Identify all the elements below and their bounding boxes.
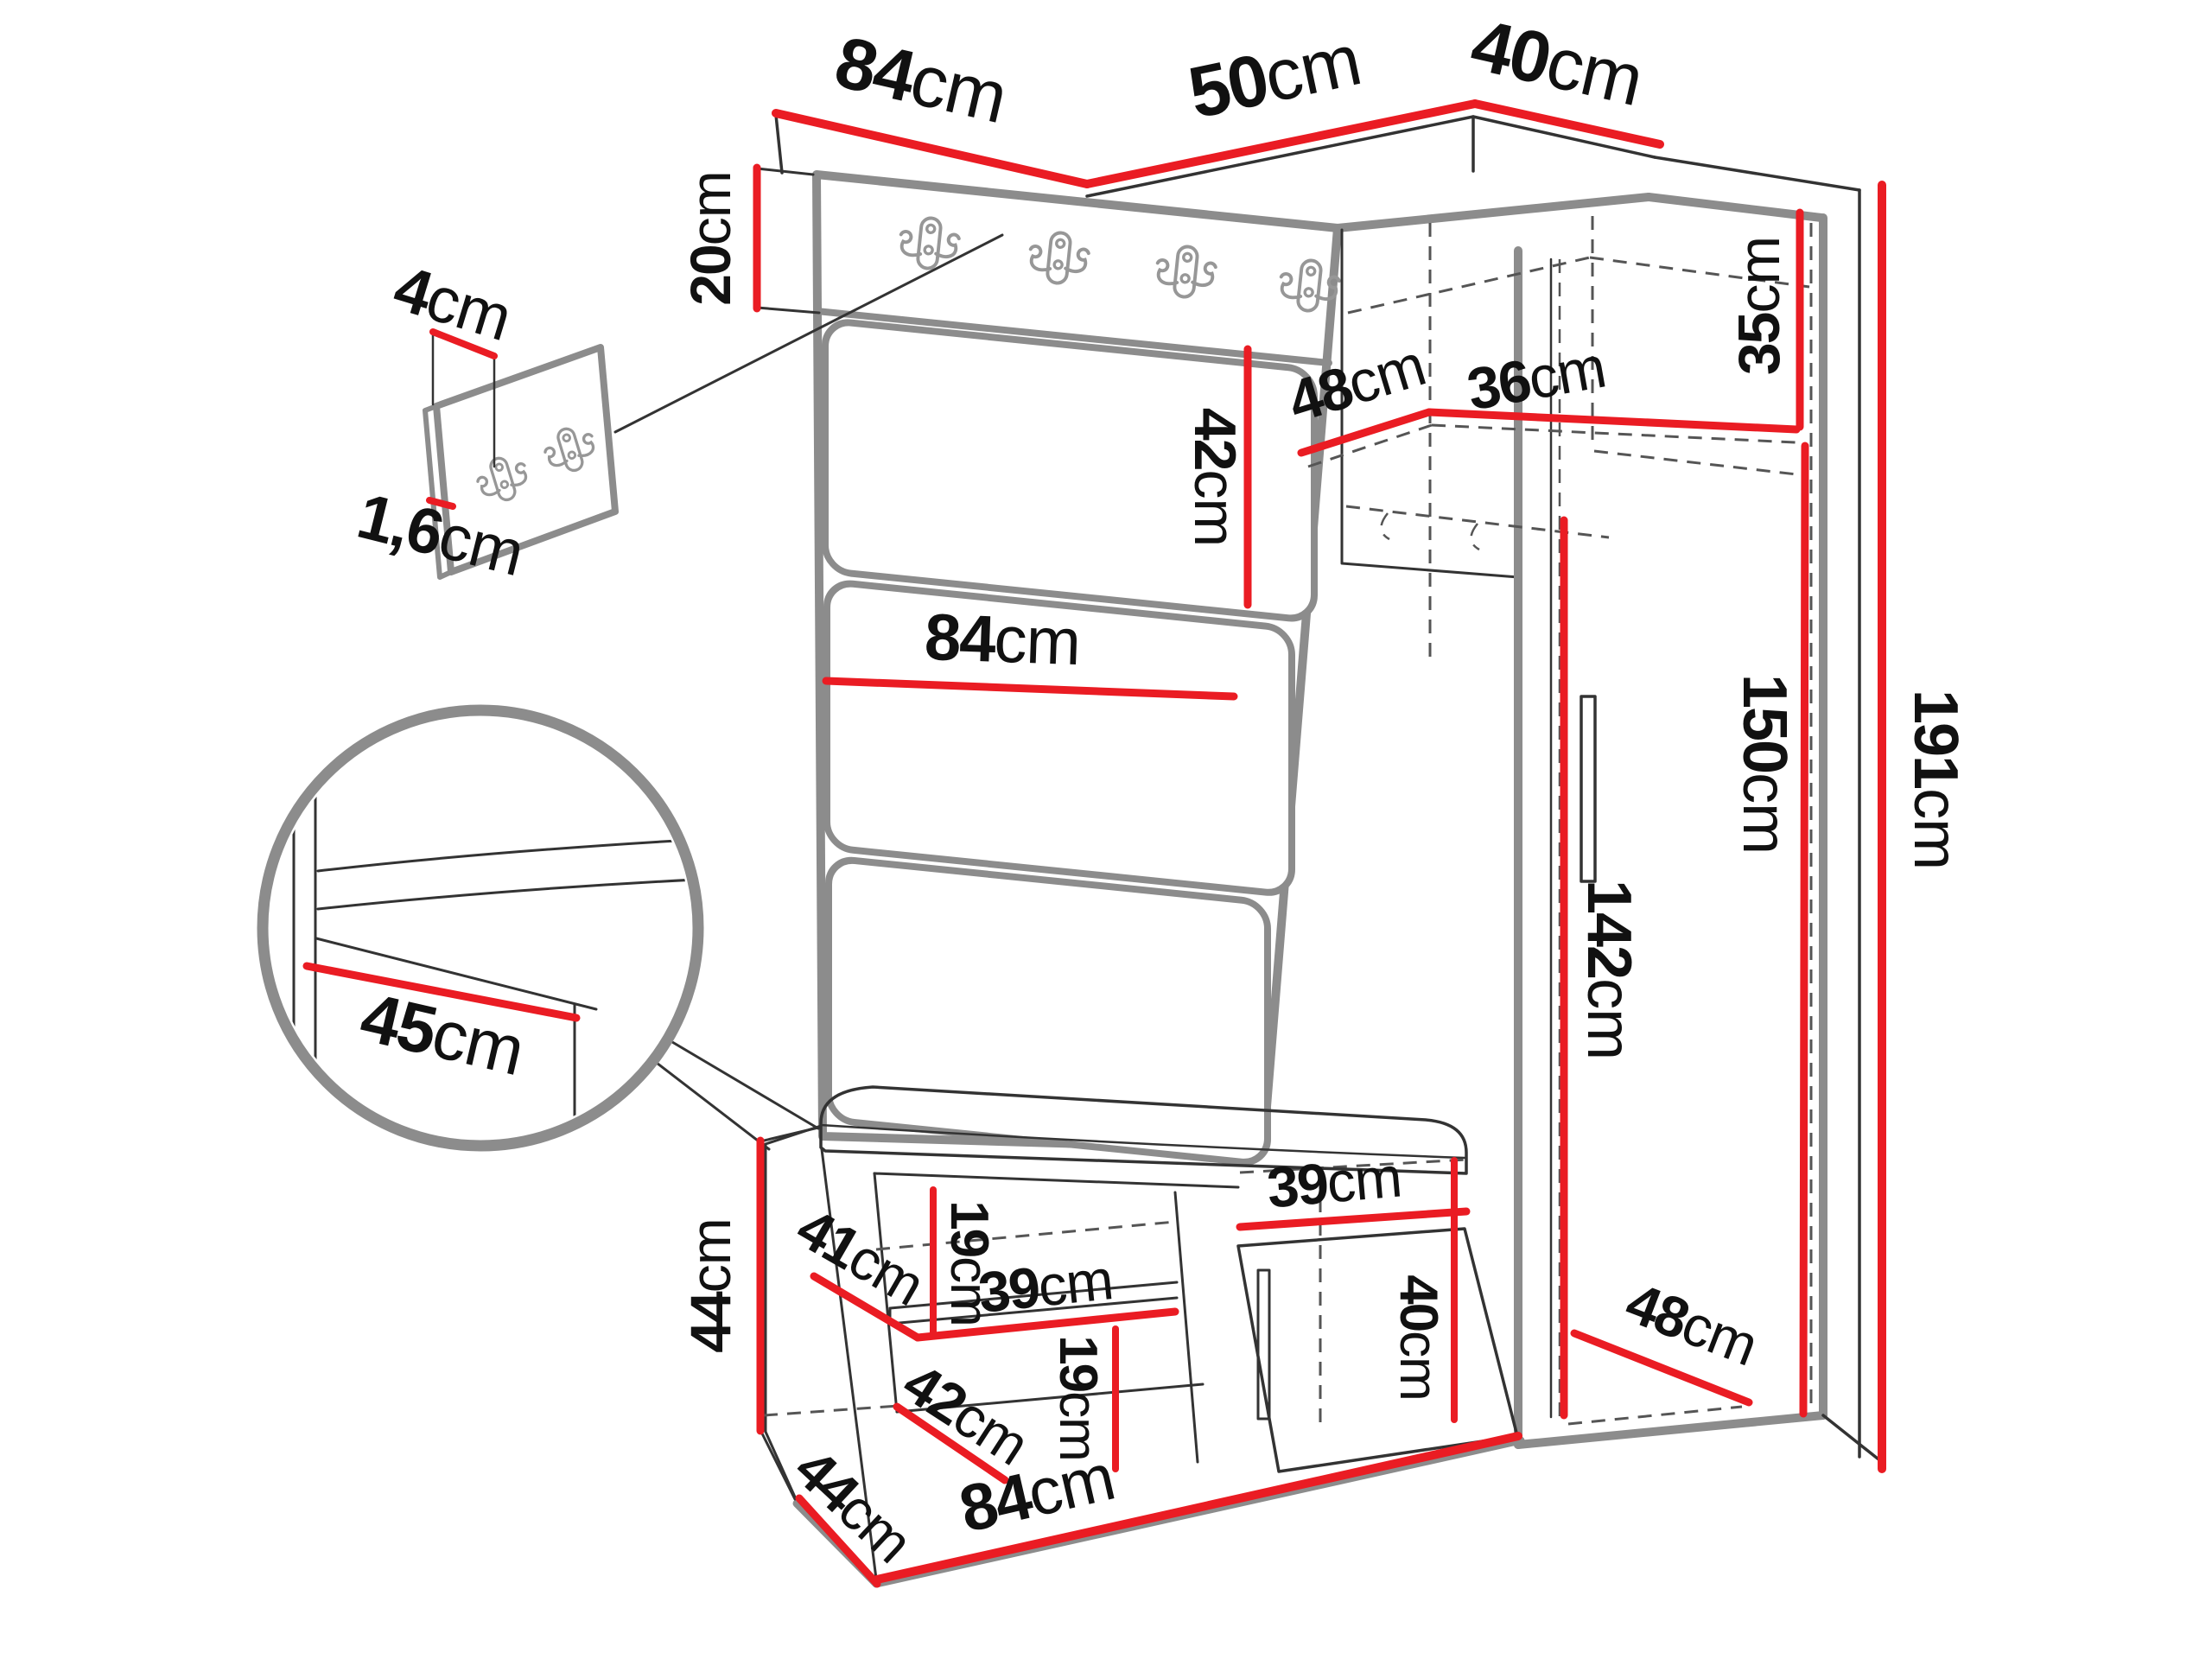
dim-label-panel-width-mid: 84cm: [924, 600, 1082, 678]
dim-label-bench-door-width: 39cm: [1264, 1144, 1403, 1219]
dim-label-bench-height: 44cm: [678, 1218, 742, 1352]
dim-label-corner-interior-height: 35cm: [1726, 237, 1792, 375]
diagram-canvas: 84cm 50cm 40cm 20cm 4cm 1,6cm 42cm 48cm …: [0, 0, 2212, 1659]
dim-label-wardrobe-interior-height: 150cm: [1730, 674, 1799, 854]
dim-label-wardrobe-rail-height: 142cm: [1574, 880, 1643, 1059]
dim-label-total-height: 191cm: [1901, 690, 1970, 869]
dim-label-cushion-height: 42cm: [1182, 408, 1248, 546]
dim-label-hook-strip-height: 20cm: [678, 171, 742, 305]
furniture-dimension-diagram: 84cm 50cm 40cm 20cm 4cm 1,6cm 42cm 48cm …: [0, 0, 2212, 1659]
dim-line-150: [1803, 446, 1805, 1414]
dim-label-bench-door-height: 40cm: [1389, 1274, 1449, 1401]
